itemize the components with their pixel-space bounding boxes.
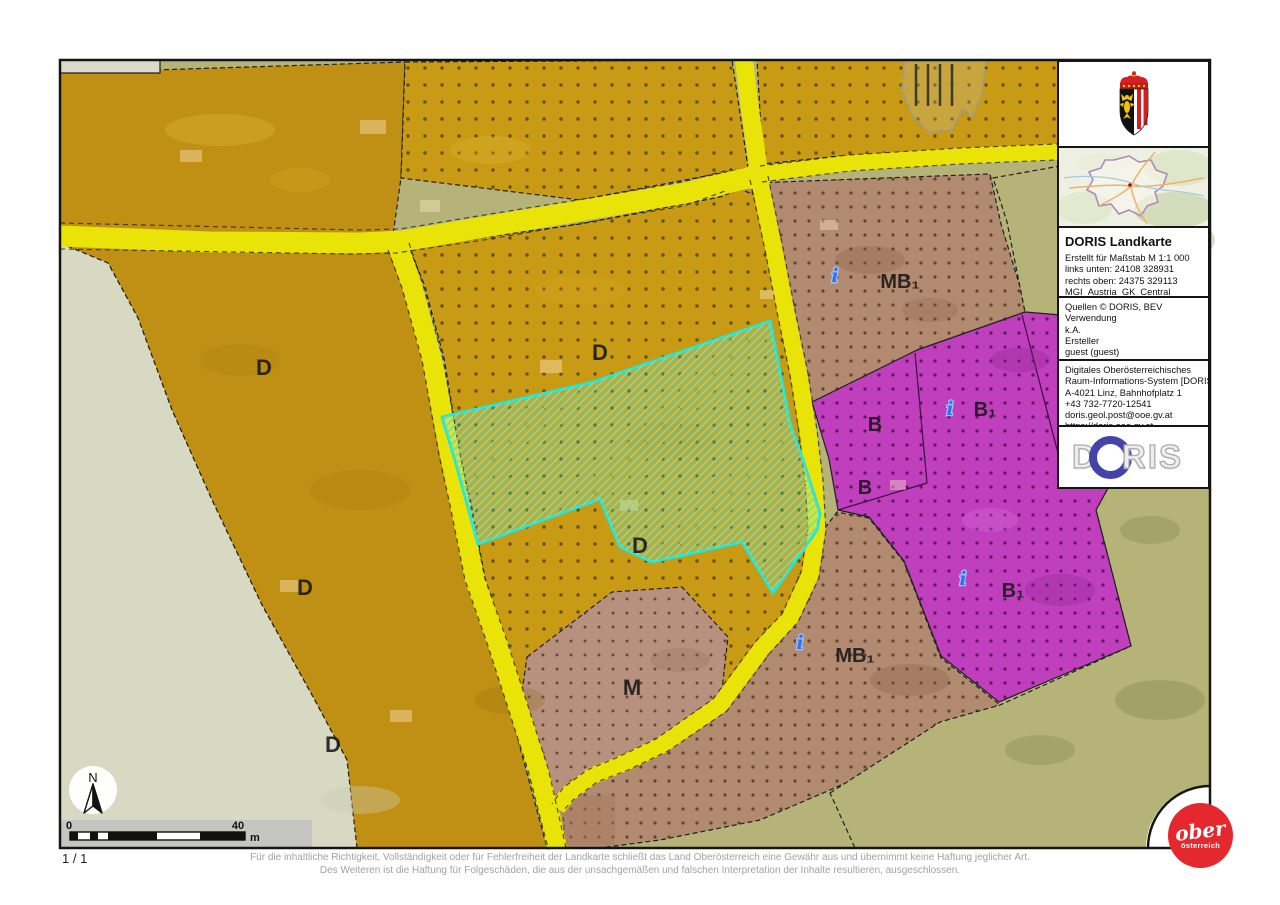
scale-note: Erstellt für Maßstab M 1:1 000 — [1065, 253, 1202, 264]
doris-map-page: D D D D D M MB₁ MB₁ B B B₁ B₁ i i i i — [0, 0, 1280, 905]
page-number: 1 / 1 — [62, 851, 87, 866]
org-name-line1: Digitales Oberösterreichisches — [1065, 365, 1202, 376]
zone-label-b1: B₁ — [1002, 580, 1025, 602]
info-icon: i — [959, 568, 966, 590]
disclaimer: Für die inhaltliche Richtigkeit, Vollstä… — [0, 851, 1280, 877]
zone-label-d: D — [256, 355, 272, 380]
zone-label-d: D — [325, 732, 341, 757]
org-email: doris.geol.post@ooe.gv.at — [1065, 410, 1202, 421]
north-arrow: N — [69, 766, 117, 814]
ober-logo-script: ober — [1174, 818, 1226, 842]
scale-bar-segments — [70, 832, 245, 840]
zone-label-d: D — [297, 575, 313, 600]
road-junction — [743, 163, 771, 191]
info-icon: i — [946, 398, 953, 420]
overview-map — [1059, 148, 1208, 226]
zone-label-mb1: MB₁ — [835, 645, 874, 667]
coords-lower-left: links unten: 24108 328931 — [1065, 264, 1202, 275]
overview-map-box — [1059, 146, 1208, 226]
scale-bar: 0 40 m — [60, 820, 312, 848]
creator-value: guest (guest) — [1065, 347, 1202, 358]
upper-austria-coat-of-arms-icon — [1111, 71, 1157, 137]
zone-label-b: B — [858, 477, 872, 499]
usage-label: Verwendung — [1065, 313, 1202, 324]
zone-open-corner — [60, 60, 160, 73]
scale-start-label: 0 — [66, 820, 72, 832]
doris-logo: D RIS — [1059, 427, 1208, 487]
org-name-line2: Raum-Informations-System [DORIS] — [1065, 376, 1202, 387]
disclaimer-line-2: Des Weiteren ist die Haftung für Folgesc… — [0, 864, 1280, 877]
sources-line: Quellen © DORIS, BEV — [1065, 302, 1202, 313]
org-phone: +43 732-7720-12541 — [1065, 399, 1202, 410]
doris-logo-letters-ris: RIS — [1122, 438, 1183, 476]
sources-box: Quellen © DORIS, BEV Verwendung k.A. Ers… — [1059, 296, 1208, 359]
ober-oesterreich-logo: ober österreich — [1168, 803, 1233, 868]
projection-name: MGI_Austria_GK_Central — [1065, 287, 1202, 296]
info-icon: i — [796, 632, 803, 654]
contact-box: Digitales Oberösterreichisches Raum-Info… — [1059, 359, 1208, 425]
usage-value: k.A. — [1065, 325, 1202, 336]
north-label: N — [88, 770, 97, 785]
zone-label-m: M — [623, 675, 641, 700]
zone-label-b: B — [868, 414, 882, 436]
scale-end-label: 40 — [232, 820, 244, 832]
info-icon: i — [831, 265, 838, 287]
map-title-box: DORIS Landkarte Erstellt für Maßstab M 1… — [1059, 226, 1208, 296]
coords-upper-right: rechts oben: 24375 329113 — [1065, 276, 1202, 287]
info-panel: DORIS Landkarte Erstellt für Maßstab M 1… — [1057, 60, 1210, 489]
zone-label-mb1: MB₁ — [880, 271, 919, 293]
zone-label-b1: B₁ — [974, 399, 997, 421]
zone-label-d: D — [632, 533, 648, 558]
coat-of-arms-box — [1059, 62, 1208, 146]
doris-logo-box: D RIS — [1059, 425, 1208, 487]
zone-label-d: D — [592, 340, 608, 365]
map-canvas: D D D D D M MB₁ MB₁ B B B₁ B₁ i i i i — [60, 60, 1210, 848]
org-address: A-4021 Linz, Bahnhofplatz 1 — [1065, 388, 1202, 399]
scale-unit-label: m — [250, 832, 260, 844]
map-title: DORIS Landkarte — [1065, 234, 1202, 249]
creator-label: Ersteller — [1065, 336, 1202, 347]
disclaimer-line-1: Für die inhaltliche Richtigkeit, Vollstä… — [0, 851, 1280, 864]
